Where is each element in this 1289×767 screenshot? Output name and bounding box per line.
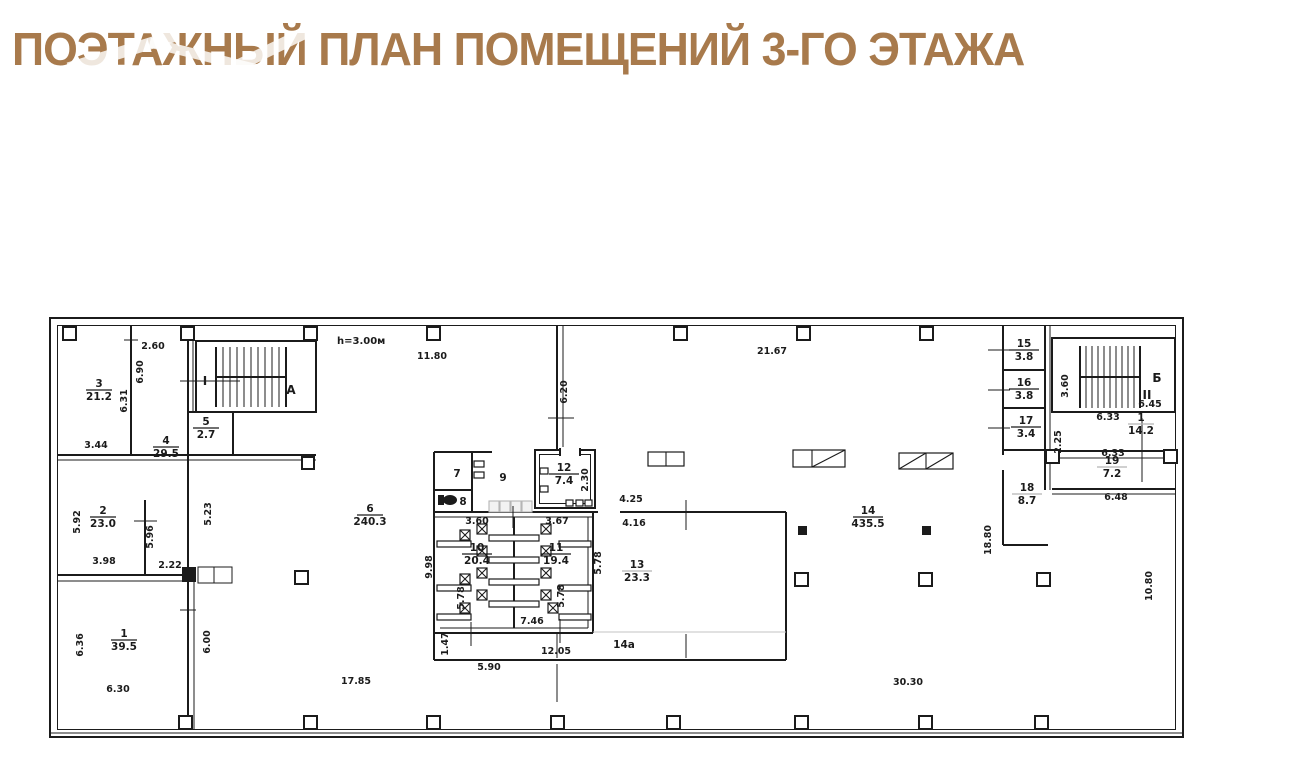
room-number: 17 xyxy=(1019,415,1034,427)
dimension-label: 10.80 xyxy=(1144,571,1155,601)
vent-shafts xyxy=(648,450,953,469)
room-area: 3.8 xyxy=(1015,351,1034,363)
dimension-label: 18.80 xyxy=(983,525,994,555)
zone-letter: А xyxy=(286,383,296,397)
room-area: 3.4 xyxy=(1017,428,1036,440)
room-number: 6 xyxy=(366,503,373,515)
zone-letter: Б xyxy=(1152,371,1161,385)
dimension-label: 6.30 xyxy=(106,684,130,695)
room-number: 8 xyxy=(459,496,466,508)
room-area: 20.4 xyxy=(464,555,490,567)
room-number: 12 xyxy=(557,462,572,474)
room-area: 14.2 xyxy=(1128,425,1154,437)
dimension-label: 12.05 xyxy=(541,646,571,657)
dimension-label: 17.85 xyxy=(341,676,371,687)
dimension-label: 6.00 xyxy=(202,630,213,654)
room-area: 7.4 xyxy=(555,475,574,487)
room-area: 23.0 xyxy=(90,518,116,530)
dimension-label: 1.47 xyxy=(440,632,451,655)
room-number: 11 xyxy=(549,542,564,554)
dimension-label: 6.48 xyxy=(1104,492,1128,503)
dimension-label: 5.78 xyxy=(593,551,604,575)
dimension-label: 2.22 xyxy=(158,560,181,571)
room-area: 2.7 xyxy=(197,429,216,441)
room-area: 240.3 xyxy=(353,516,386,528)
room-number: 7 xyxy=(453,468,460,480)
dimension-label: 3.60 xyxy=(1060,374,1071,398)
dimension-label: 7.46 xyxy=(520,616,544,627)
dimension-label: 3.60 xyxy=(465,516,489,527)
room-number: 18 xyxy=(1020,482,1035,494)
interior-walls-center xyxy=(434,326,786,660)
dimension-label: 21.67 xyxy=(757,346,787,357)
ceiling-height-note: h=3.00м xyxy=(337,336,385,347)
floor-plan-drawing: h=3.00м 2.606.906.313.445.923.985.962.22… xyxy=(0,0,1289,767)
dimension-label: 6.31 xyxy=(119,389,130,412)
dimension-label: 4.25 xyxy=(619,494,642,505)
dimension-label: 5.78 xyxy=(556,584,567,608)
dimension-label: 11.80 xyxy=(417,351,447,362)
dimension-label: 6.36 xyxy=(75,633,86,657)
stairwell-a xyxy=(196,341,316,412)
room-area: 3.8 xyxy=(1015,390,1034,402)
dimension-label: 6.20 xyxy=(559,380,570,404)
room-area: 19.4 xyxy=(543,555,569,567)
room-number: 1 xyxy=(120,628,127,640)
dimension-label: 4.16 xyxy=(622,518,646,529)
dimension-label: 3.67 xyxy=(545,516,568,527)
dimension-label: 5.92 xyxy=(72,510,83,533)
dimension-label: 6.90 xyxy=(135,360,146,384)
dimension-label: 30.30 xyxy=(893,677,923,688)
dimension-label: 9.98 xyxy=(424,555,435,579)
dimension-label: 6.33 xyxy=(1096,412,1119,423)
room-area: 7.2 xyxy=(1103,468,1122,480)
room-number: 3 xyxy=(95,378,102,390)
dimension-label: 5.23 xyxy=(203,502,214,525)
room-area: 435.5 xyxy=(851,518,884,530)
dimension-label: 3.44 xyxy=(84,440,108,451)
room-number: 2 xyxy=(99,505,106,517)
dimension-label: 3.98 xyxy=(92,556,116,567)
room-number: 14а xyxy=(613,639,635,651)
dimension-label: 5.78 xyxy=(456,586,467,610)
dimension-label: 2.25 xyxy=(1053,430,1064,453)
dimension-label: 2.30 xyxy=(580,468,591,492)
room-number: 16 xyxy=(1017,377,1032,389)
dimension-label: 5.90 xyxy=(477,662,501,673)
room-area: 29.5 xyxy=(153,448,179,460)
room-area: 21.2 xyxy=(86,391,112,403)
floor-plan-page: ПОЭТАЖНЫЙ ПЛАН ПОМЕЩЕНИЙ 3-ГО ЭТАЖА xyxy=(0,0,1289,767)
room-number: 9 xyxy=(499,472,506,484)
room-number: 14 xyxy=(861,505,876,517)
zone-letter: I xyxy=(203,374,207,388)
room-number: 19 xyxy=(1105,455,1120,467)
room-number: 15 xyxy=(1017,338,1032,350)
room-number: 10 xyxy=(470,542,485,554)
room-number: 4 xyxy=(162,435,169,447)
zone-letter: II xyxy=(1143,388,1152,402)
room-area: 23.3 xyxy=(624,572,650,584)
room-number: 13 xyxy=(630,559,645,571)
dimension-label: 2.60 xyxy=(141,341,165,352)
room-area: 8.7 xyxy=(1018,495,1037,507)
room-area: 39.5 xyxy=(111,641,137,653)
dimension-label: 5.96 xyxy=(145,525,156,549)
room-number: 5 xyxy=(202,416,209,428)
room-number: 1 xyxy=(1137,412,1144,424)
